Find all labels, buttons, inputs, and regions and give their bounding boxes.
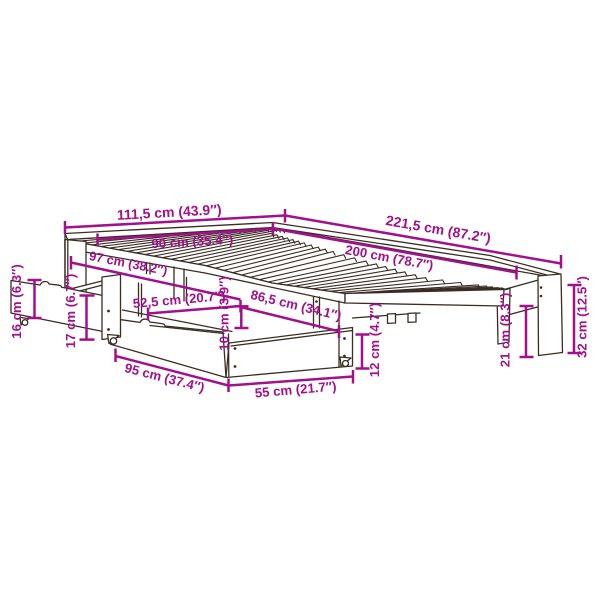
- svg-text:10 cm (3.9″): 10 cm (3.9″): [217, 276, 232, 351]
- svg-text:17 cm (6.7″): 17 cm (6.7″): [63, 274, 78, 349]
- svg-text:16 cm (6.3″): 16 cm (6.3″): [9, 264, 24, 339]
- svg-text:32 cm (12.5″): 32 cm (12.5″): [575, 276, 590, 358]
- svg-text:21 cm (8.3″): 21 cm (8.3″): [498, 293, 513, 368]
- svg-text:12 cm (4.7″): 12 cm (4.7″): [367, 303, 382, 378]
